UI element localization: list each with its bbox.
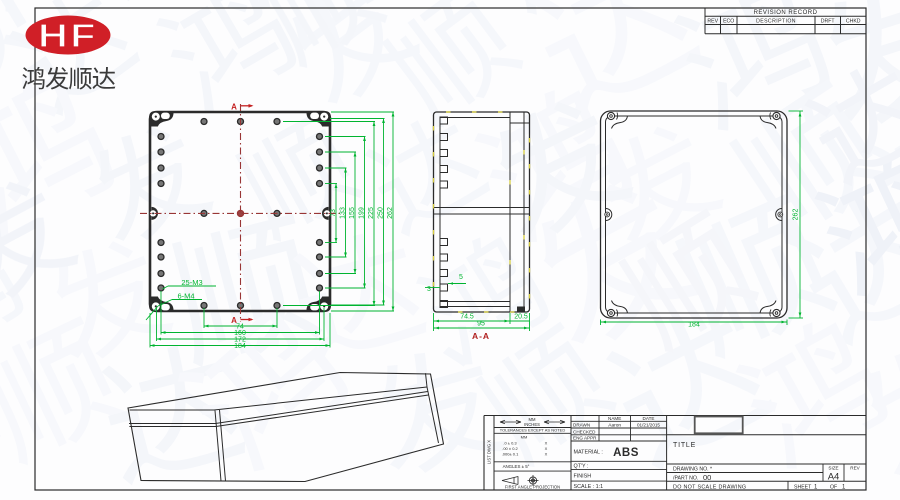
svg-text:95: 95 bbox=[477, 321, 485, 328]
svg-text:250: 250 bbox=[378, 207, 385, 219]
svg-text:A: A bbox=[231, 103, 237, 112]
svg-text:SCALE : 1:1: SCALE : 1:1 bbox=[574, 484, 604, 490]
svg-text:FINISH: FINISH bbox=[574, 474, 592, 480]
svg-text:QT'Y :: QT'Y : bbox=[574, 463, 589, 469]
svg-text:CHKD: CHKD bbox=[846, 18, 861, 24]
svg-text:X: X bbox=[545, 452, 548, 457]
svg-text:73: 73 bbox=[330, 209, 337, 217]
svg-text:REV: REV bbox=[850, 466, 860, 471]
svg-text:DRFT: DRFT bbox=[821, 18, 836, 24]
svg-text:HF: HF bbox=[38, 17, 98, 54]
svg-text:FIRST ANGLE PROJECTION: FIRST ANGLE PROJECTION bbox=[505, 485, 560, 490]
svg-text:DO NOT SCALE DRAWING: DO NOT SCALE DRAWING bbox=[673, 484, 746, 490]
svg-text:DRAWN: DRAWN bbox=[573, 423, 590, 428]
svg-text:CHECKED: CHECKED bbox=[573, 429, 596, 434]
svg-text:DESCRIPTION: DESCRIPTION bbox=[756, 18, 796, 24]
svg-text:REV: REV bbox=[707, 18, 718, 24]
svg-text:SIZE: SIZE bbox=[828, 466, 838, 471]
svg-text:Aaron: Aaron bbox=[608, 423, 621, 429]
svg-text:01/21/2015: 01/21/2015 bbox=[637, 423, 660, 428]
svg-text:74.5: 74.5 bbox=[460, 314, 474, 321]
svg-text:20.5: 20.5 bbox=[514, 314, 528, 321]
svg-text:X: X bbox=[545, 441, 548, 446]
svg-text:262: 262 bbox=[387, 207, 394, 219]
svg-text:TOLERANCES EXCEPT AS NOTED: TOLERANCES EXCEPT AS NOTED bbox=[500, 428, 566, 433]
svg-text:199: 199 bbox=[359, 207, 366, 219]
svg-text:LIST DWG X: LIST DWG X bbox=[487, 440, 492, 464]
svg-text:MATERIAL :: MATERIAL : bbox=[574, 450, 603, 456]
svg-text:TITLE: TITLE bbox=[673, 442, 696, 449]
svg-text:OF: OF bbox=[830, 484, 837, 490]
svg-text:.00 ± 0.2: .00 ± 0.2 bbox=[502, 446, 518, 451]
svg-text:/PART NO.: /PART NO. bbox=[673, 475, 698, 481]
svg-text:REVISION RECORD: REVISION RECORD bbox=[754, 10, 818, 16]
svg-text:NAME: NAME bbox=[608, 416, 621, 421]
svg-text:A-A: A-A bbox=[472, 331, 490, 341]
svg-text:ANGLES ± 5°: ANGLES ± 5° bbox=[503, 464, 530, 469]
svg-text:00: 00 bbox=[703, 473, 711, 482]
svg-text:262: 262 bbox=[793, 209, 800, 221]
svg-text:184: 184 bbox=[234, 343, 246, 350]
svg-text:MM: MM bbox=[521, 435, 528, 440]
svg-text:155: 155 bbox=[349, 207, 356, 219]
svg-text:133: 133 bbox=[340, 207, 347, 219]
svg-text:A4: A4 bbox=[828, 472, 840, 483]
svg-text:184: 184 bbox=[688, 322, 700, 329]
svg-text:DRAWING NO. *: DRAWING NO. * bbox=[673, 466, 712, 472]
svg-text:INCHES: INCHES bbox=[524, 422, 540, 427]
svg-text:DATE: DATE bbox=[643, 416, 655, 421]
svg-text:SHEET: SHEET bbox=[794, 484, 812, 490]
svg-text:ECO: ECO bbox=[723, 18, 734, 24]
svg-text:.000± 0.1: .000± 0.1 bbox=[502, 452, 519, 457]
svg-text:X: X bbox=[545, 446, 548, 451]
svg-text:225: 225 bbox=[368, 207, 375, 219]
svg-text:.0 ± 0.3: .0 ± 0.3 bbox=[503, 441, 517, 446]
svg-text:5: 5 bbox=[459, 274, 463, 281]
svg-text:ENG APPR: ENG APPR bbox=[573, 436, 597, 441]
svg-text:ABS: ABS bbox=[613, 447, 639, 459]
